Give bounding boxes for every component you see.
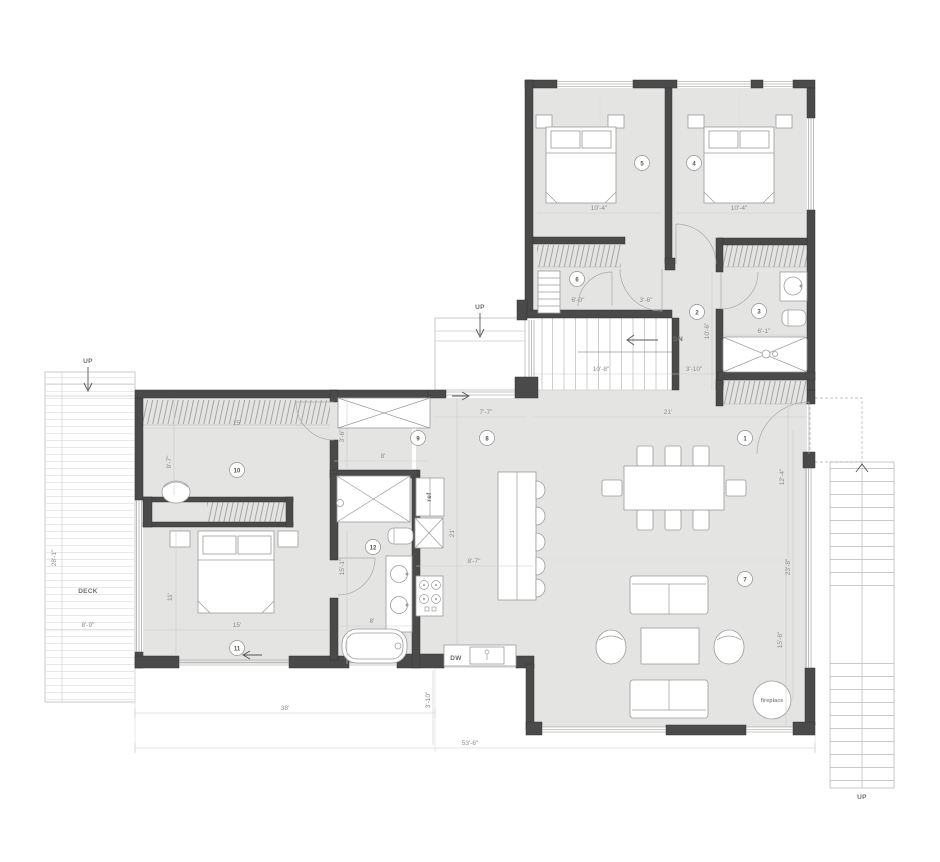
exterior-stairs-right: [810, 398, 894, 788]
interior-stairs: [533, 318, 672, 390]
svg-text:11: 11: [234, 647, 241, 653]
dim-room10-width: 15': [233, 420, 241, 427]
dim-room10-height: 9'-7": [166, 455, 173, 469]
porch-up-label: UP: [475, 304, 485, 311]
dim-closet6: 6'-0": [572, 297, 586, 304]
sink-icon: [784, 277, 802, 295]
dim-living-height: 15'-6": [777, 631, 784, 648]
room-tag-1: 1: [738, 431, 753, 446]
window-left-wing: [137, 500, 142, 652]
stairs-up-label: UP: [857, 794, 867, 801]
room-tag-12: 12: [366, 540, 381, 555]
room-tag-2: 2: [690, 305, 705, 320]
room-tag-6: 6: [570, 272, 585, 287]
dim-kitchen-width: 8'-7": [468, 558, 482, 565]
fireplace-label: fireplace: [761, 698, 784, 704]
dim-total-width: 53'-6": [462, 740, 479, 747]
dishwasher-label: DW: [450, 655, 462, 662]
window-top-3: [763, 82, 793, 87]
room-tag-10: 10: [230, 463, 245, 478]
bed-room5: [536, 115, 624, 203]
entry-porch: [435, 313, 525, 400]
stairs-dn-label: DN: [673, 336, 683, 343]
storage-cabinet-room9: [338, 398, 430, 428]
window-greatroom-bottom-1: [542, 727, 666, 732]
window-top-2: [677, 82, 751, 87]
dim-hall-width: 3'-10": [686, 366, 703, 373]
dim-kitchen-height: 21': [449, 529, 456, 537]
deck-up-label: UP: [83, 358, 93, 365]
dim-kitchen-offset: 3'-10": [425, 691, 432, 708]
window-greatroom-bottom-2: [746, 727, 793, 732]
room-tag-8: 8: [480, 431, 495, 446]
dim-room11-height: 11': [167, 593, 174, 601]
shower-head-icon: [337, 500, 344, 507]
dim-entry-width: 7'-7": [480, 409, 494, 416]
room-tag-5: 5: [635, 156, 650, 171]
dining-table: [624, 466, 724, 510]
dim-room9-width: 8': [381, 453, 386, 460]
sink-icon: [391, 566, 408, 583]
armchair: [714, 630, 744, 664]
dim-bath12-width: 8': [370, 618, 375, 625]
refrigerator-label: ref: [426, 492, 433, 502]
dim-bedroom5-width: 10'-4": [591, 205, 608, 212]
dim-deck-height: 28'-1": [51, 549, 58, 566]
svg-text:12: 12: [370, 546, 377, 552]
room-tag-11: 11: [230, 641, 245, 656]
floor-plan-drawing: 10'-4" 10'-4" 6'-0" 3'-6" 6'-1" 10'-6" 1…: [0, 0, 940, 862]
room-tag-9: 9: [411, 431, 426, 446]
floor-plan-canvas: 10'-4" 10'-4" 6'-0" 3'-6" 6'-1" 10'-6" 1…: [0, 0, 940, 862]
dim-dining-width: 21': [664, 409, 672, 416]
svg-text:10: 10: [234, 469, 241, 475]
room-tag-3: 3: [752, 304, 767, 319]
deck: [45, 367, 135, 702]
dim-stair: 10'-8": [593, 366, 610, 373]
dim-bedroom4-width: 10'-4": [731, 205, 748, 212]
closet-shelves-room6: [538, 271, 560, 313]
toilet-icon: [782, 310, 806, 326]
landing-dashed-outline: [810, 398, 862, 462]
deck-label: DECK: [78, 588, 98, 595]
dim-wing-width: 38': [281, 705, 289, 712]
dim-hall-door: 3'-6": [640, 297, 654, 304]
sink-icon: [391, 597, 408, 614]
dim-window-height: 23'-8": [785, 558, 792, 575]
dim-dining-height: 12'-4": [779, 468, 786, 485]
dim-bath3-height: 10'-6": [704, 322, 711, 339]
chair-room10: [162, 481, 190, 503]
dim-room9-height: 3'-6": [339, 429, 346, 443]
toilet-icon: [388, 528, 413, 544]
window-top-1: [557, 82, 633, 87]
armchair: [596, 630, 626, 664]
room-tag-4: 4: [687, 156, 702, 171]
coffee-table: [641, 628, 699, 664]
dim-bath12-height: 15'-1": [339, 558, 346, 575]
window-bedroom4-right: [809, 118, 814, 210]
dim-room11-width: 15': [233, 622, 241, 629]
room-tag-7: 7: [738, 572, 753, 587]
dim-deck-width: 8'-9": [82, 622, 96, 629]
dim-bath3-width: 6'-1": [758, 328, 772, 335]
